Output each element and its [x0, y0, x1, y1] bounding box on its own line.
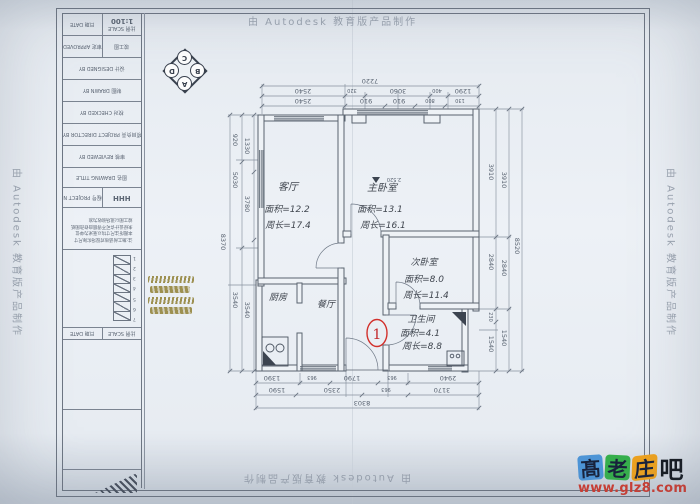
room-perimeter-secondbedroom: 周长=11.4 [403, 290, 449, 301]
red-circle-marker: 1 [367, 320, 387, 347]
dim-value: 2540 [295, 87, 312, 95]
site-brand-char-4: 吧 [659, 455, 684, 480]
room-area-livingroom: 面积=12.2 [264, 204, 310, 215]
dim-value: 910 [360, 97, 372, 105]
dim-value: 400 [432, 87, 442, 93]
site-brand-char-1: 髙 [577, 454, 604, 481]
dim-value: 3170 [434, 386, 451, 394]
dim-value: 1390 [264, 374, 281, 382]
room-perimeter-livingroom: 周长=17.4 [265, 220, 311, 231]
dim-value: 1590 [269, 386, 286, 394]
site-brand-char-3: 庄 [631, 454, 657, 481]
elevation-value: 2.520 [387, 176, 401, 182]
dim-value: 3060 [390, 87, 407, 95]
scanned-cad-floorplan: { "palette":{"ink":"#59636f","dim_text":… [0, 0, 700, 504]
room-perimeter-bathroom: 周长=8.8 [402, 341, 442, 352]
dim-value: 3910 [500, 172, 508, 189]
dim-value: 1790 [344, 374, 361, 382]
dim-value: 3780 [243, 196, 251, 213]
dim-value: 910 [393, 97, 405, 105]
dim-value: 2940 [440, 374, 457, 382]
dim-value: 1330 [243, 138, 251, 155]
dim-value: 800 [425, 97, 435, 103]
dim-value: 2840 [487, 254, 495, 271]
dim-value: 320 [347, 87, 357, 93]
dim-value: 2350 [324, 386, 341, 394]
room-name-kitchen: 厨房 [269, 292, 288, 303]
dim-value: 3910 [487, 164, 495, 181]
dim-value: 1290 [455, 87, 472, 95]
room-area-masterbedroom: 面积=13.1 [357, 204, 403, 215]
dim-value: 963 [307, 374, 317, 380]
dim-top-overall: 7220 [362, 77, 379, 85]
dim-value: 3540 [243, 302, 251, 319]
site-url: www.glz8.com [578, 481, 698, 496]
room-area-bathroom: 面积=4.1 [400, 328, 440, 339]
dim-value: 5030 [231, 172, 239, 189]
dim-value: 230 [487, 312, 493, 322]
room-name-dining: 餐厅 [317, 299, 337, 310]
dim-value: 920 [231, 134, 239, 146]
floorplan-svg: 7220 2540 320 3060 400 1290 2540 910 910… [0, 0, 700, 504]
dim-left-overall: 8370 [219, 234, 227, 251]
dim-value: 2540 [295, 97, 312, 105]
room-name-masterbedroom: 主卧室 [367, 182, 399, 194]
room-name-secondbedroom: 次卧室 [410, 257, 439, 268]
dim-value: 1540 [500, 330, 508, 347]
room-name-bathroom: 卫生间 [407, 314, 435, 325]
site-brand: 髙 老 庄 吧 [578, 455, 698, 480]
room-name-livingroom: 客厅 [278, 181, 300, 193]
site-watermark: 髙 老 庄 吧 www.glz8.com [578, 455, 698, 496]
dim-value: 3540 [231, 292, 239, 309]
dim-value: 130 [455, 97, 465, 103]
site-brand-char-2: 老 [604, 454, 630, 480]
room-labels-layer: 客厅 面积=12.2 周长=17.4 主卧室 面积=13.1 周长=16.1 次… [264, 181, 449, 352]
red-marker-number: 1 [373, 327, 382, 343]
dim-bottom-overall: 8303 [354, 399, 371, 407]
dim-value: 2840 [500, 260, 508, 277]
room-perimeter-masterbedroom: 周长=16.1 [360, 220, 406, 231]
room-area-secondbedroom: 面积=8.0 [404, 274, 444, 285]
dim-value: 963 [381, 386, 391, 392]
dim-value: 963 [387, 374, 397, 380]
dim-value: 1540 [487, 336, 495, 353]
dimension-lines-layer [228, 84, 524, 410]
dim-right-overall: 8520 [513, 238, 521, 255]
